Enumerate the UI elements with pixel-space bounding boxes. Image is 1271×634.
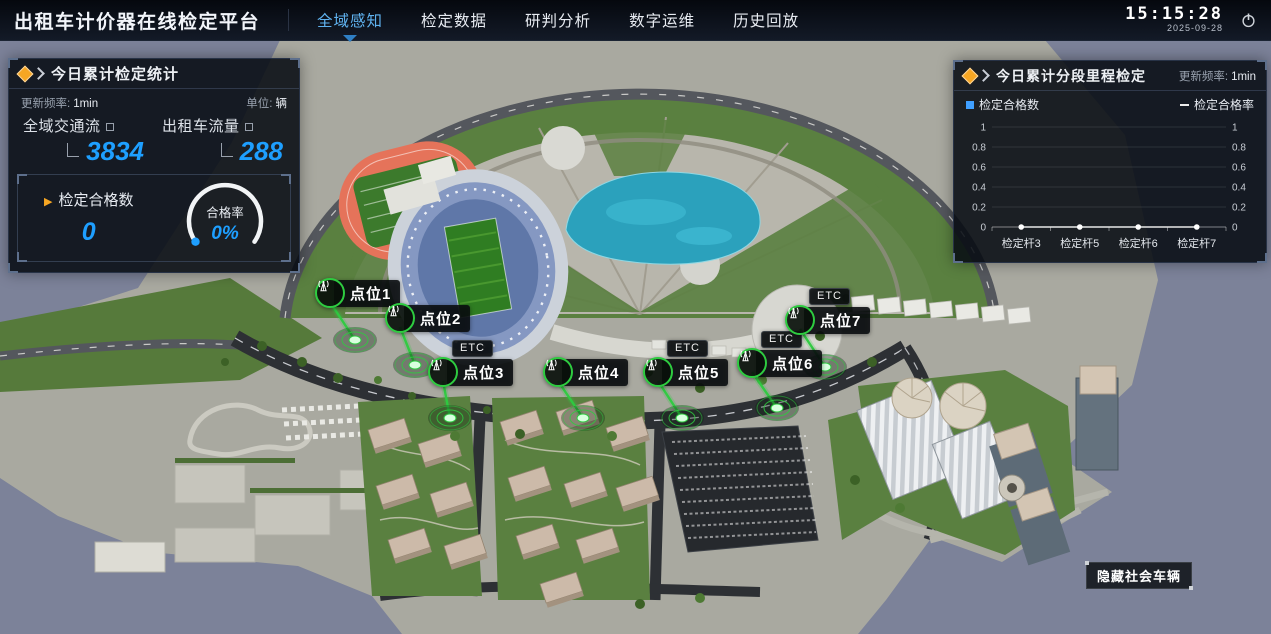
power-button[interactable] <box>1237 9 1259 31</box>
panel-header: 今日累计分段里程检定 更新频率:1min <box>954 61 1266 91</box>
etc-badge: ETC <box>667 340 708 357</box>
pass-rate-gauge: 合格率 0% <box>159 177 290 259</box>
diamond-icon <box>962 67 979 84</box>
stat-label: 出租车流量 <box>162 115 240 136</box>
app-title: 出租车计价器在线检定平台 <box>0 7 274 34</box>
legend-item-pass-count[interactable]: 检定合格数 <box>966 96 1039 113</box>
marker-point-7[interactable]: ETC 点位7 <box>785 305 870 335</box>
svg-text:0.4: 0.4 <box>1232 183 1246 194</box>
marker-point-4[interactable]: 点位4 <box>543 357 628 387</box>
svg-text:检定杆7: 检定杆7 <box>1177 236 1216 250</box>
square-marker-icon <box>106 123 114 131</box>
svg-text:0.6: 0.6 <box>1232 163 1246 174</box>
nav-tab-digital-ops[interactable]: 数字运维 <box>627 0 697 40</box>
antenna-icon <box>643 357 673 387</box>
etc-badge: ETC <box>452 340 493 357</box>
pass-count-value: 0 <box>18 218 159 247</box>
marker-point-3[interactable]: ETC 点位3 <box>428 357 513 387</box>
marker-point-6[interactable]: ETC 点位6 <box>737 348 822 378</box>
legend-square-icon <box>966 101 974 109</box>
gauge-label: 合格率 <box>206 205 244 220</box>
antenna-icon <box>737 348 767 378</box>
clock: 15:15:28 2025-09-28 <box>1125 6 1233 33</box>
antenna-icon <box>543 357 573 387</box>
nav-tab-verification-data[interactable]: 检定数据 <box>419 0 489 40</box>
antenna-icon <box>428 357 458 387</box>
svg-text:检定杆6: 检定杆6 <box>1119 236 1158 250</box>
svg-text:0.2: 0.2 <box>972 203 986 214</box>
antenna-icon <box>315 278 345 308</box>
clock-time: 15:15:28 <box>1125 6 1223 24</box>
stat-taxi-flow: 出租车流量 288 <box>154 115 293 164</box>
svg-text:检定杆5: 检定杆5 <box>1060 236 1099 250</box>
svg-text:0.4: 0.4 <box>972 183 986 194</box>
panel-header: 今日累计检定统计 <box>9 59 299 89</box>
legend-dash-icon <box>1180 104 1189 106</box>
connector-line <box>221 143 233 157</box>
diamond-icon <box>17 65 34 82</box>
nav-tab-analysis[interactable]: 研判分析 <box>523 0 593 40</box>
stat-global-traffic: 全域交通流 3834 <box>15 115 154 164</box>
clock-date: 2025-09-28 <box>1125 24 1223 33</box>
square-marker-icon <box>245 123 253 131</box>
update-rate: 更新频率:1min <box>1179 68 1256 84</box>
gauge-value: 0% <box>211 223 239 244</box>
pass-count-block: ▶检定合格数 0 <box>18 189 159 247</box>
triangle-bullet-icon: ▶ <box>44 196 52 208</box>
power-icon <box>1241 12 1256 28</box>
marker-point-5[interactable]: ETC 点位5 <box>643 357 728 387</box>
legend-item-pass-rate[interactable]: 检定合格率 <box>1180 96 1254 113</box>
nav-tab-history-replay[interactable]: 历史回放 <box>731 0 801 40</box>
antenna-icon <box>385 303 415 333</box>
svg-text:0.8: 0.8 <box>1232 143 1246 154</box>
pass-stats-subpanel: ▶检定合格数 0 合格率 0% <box>17 174 291 262</box>
svg-text:0: 0 <box>1232 223 1238 234</box>
unit-label: 单位:辆 <box>246 95 287 111</box>
meta-row: 更新频率:1min 单位:辆 <box>9 89 299 113</box>
gauge-svg: 合格率 0% <box>173 177 277 259</box>
svg-text:1: 1 <box>1232 123 1238 134</box>
svg-text:检定杆3: 检定杆3 <box>1002 236 1041 250</box>
traffic-stats: 全域交通流 3834 出租车流量 288 <box>9 113 299 172</box>
marker-point-2[interactable]: 点位2 <box>385 303 470 333</box>
main-nav: 全域感知 检定数据 研判分析 数字运维 历史回放 <box>315 0 801 40</box>
stat-value: 3834 <box>86 138 144 164</box>
parking-lot <box>662 426 818 552</box>
header-divider <box>288 9 289 31</box>
panel-title: 今日累计检定统计 <box>51 63 179 84</box>
pass-count-label: 检定合格数 <box>58 192 133 209</box>
hide-vehicles-button[interactable]: 隐藏社会车辆 <box>1086 562 1192 589</box>
etc-badge: ETC <box>809 288 850 305</box>
update-rate: 更新频率:1min <box>21 95 98 111</box>
svg-text:0.2: 0.2 <box>1232 203 1246 214</box>
stat-label: 全域交通流 <box>23 115 101 136</box>
svg-text:0.6: 0.6 <box>972 163 986 174</box>
stat-value: 288 <box>240 138 283 164</box>
header: 出租车计价器在线检定平台 全域感知 检定数据 研判分析 数字运维 历史回放 15… <box>0 0 1271 41</box>
panel-today-verification-stats: 今日累计检定统计 更新频率:1min 单位:辆 全域交通流 3834 出租车流量… <box>8 58 300 273</box>
svg-text:0: 0 <box>980 223 986 234</box>
antenna-icon <box>785 305 815 335</box>
chevron-right-icon <box>977 69 990 82</box>
mileage-chart-svg: 000.20.20.40.40.60.60.80.811检定杆3检定杆5检定杆6… <box>958 115 1260 253</box>
panel-mileage-verification: 今日累计分段里程检定 更新频率:1min 检定合格数 检定合格率 000.20.… <box>953 60 1267 263</box>
chart-legend: 检定合格数 检定合格率 <box>954 91 1266 113</box>
svg-text:0.8: 0.8 <box>972 143 986 154</box>
chevron-right-icon <box>32 67 45 80</box>
connector-line <box>67 143 79 157</box>
panel-title: 今日累计分段里程检定 <box>996 66 1146 86</box>
nav-tab-global-perception[interactable]: 全域感知 <box>315 0 385 40</box>
svg-text:1: 1 <box>980 123 986 134</box>
